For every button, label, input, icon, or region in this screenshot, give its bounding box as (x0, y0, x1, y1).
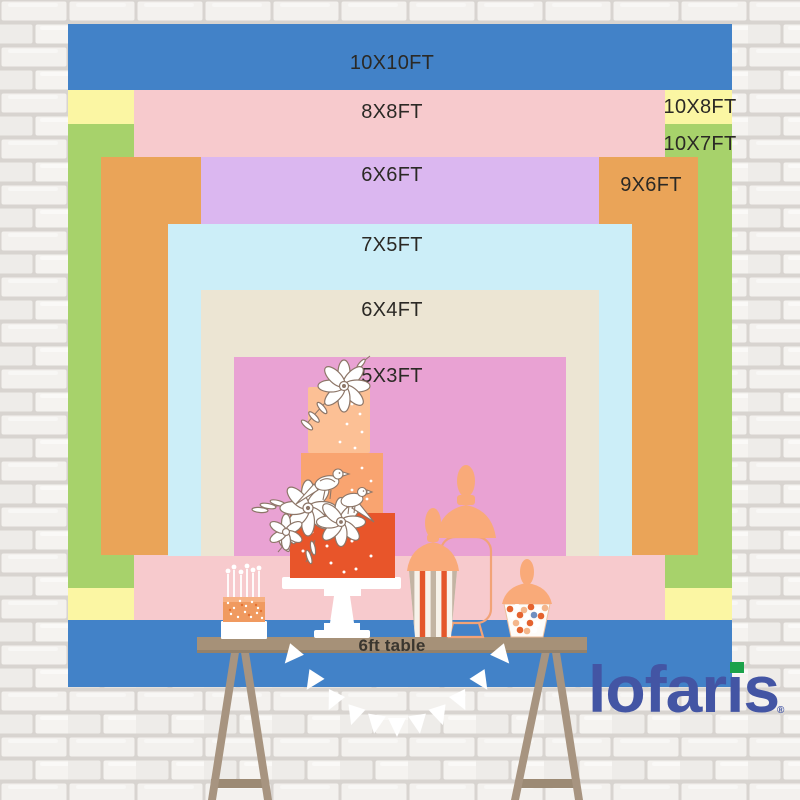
tiered-cake (252, 356, 401, 638)
product-image: { "backdrop": { "layers": [ {"id": "10x1… (0, 0, 800, 800)
cake-stand (282, 577, 401, 638)
brand-logo-green-dot (730, 662, 744, 673)
trestle-left (208, 646, 272, 800)
brand-logo-text: lofaris (588, 656, 779, 722)
registered-trademark-symbol: ® (777, 705, 784, 716)
table-size-label: 6ft table (292, 636, 492, 656)
candle-cake (221, 564, 267, 639)
brand-logo: lofaris ® (588, 656, 779, 726)
trestle-right (511, 646, 583, 800)
candy-jar (502, 559, 552, 637)
bunting-garland (278, 643, 516, 737)
candles (228, 569, 259, 598)
